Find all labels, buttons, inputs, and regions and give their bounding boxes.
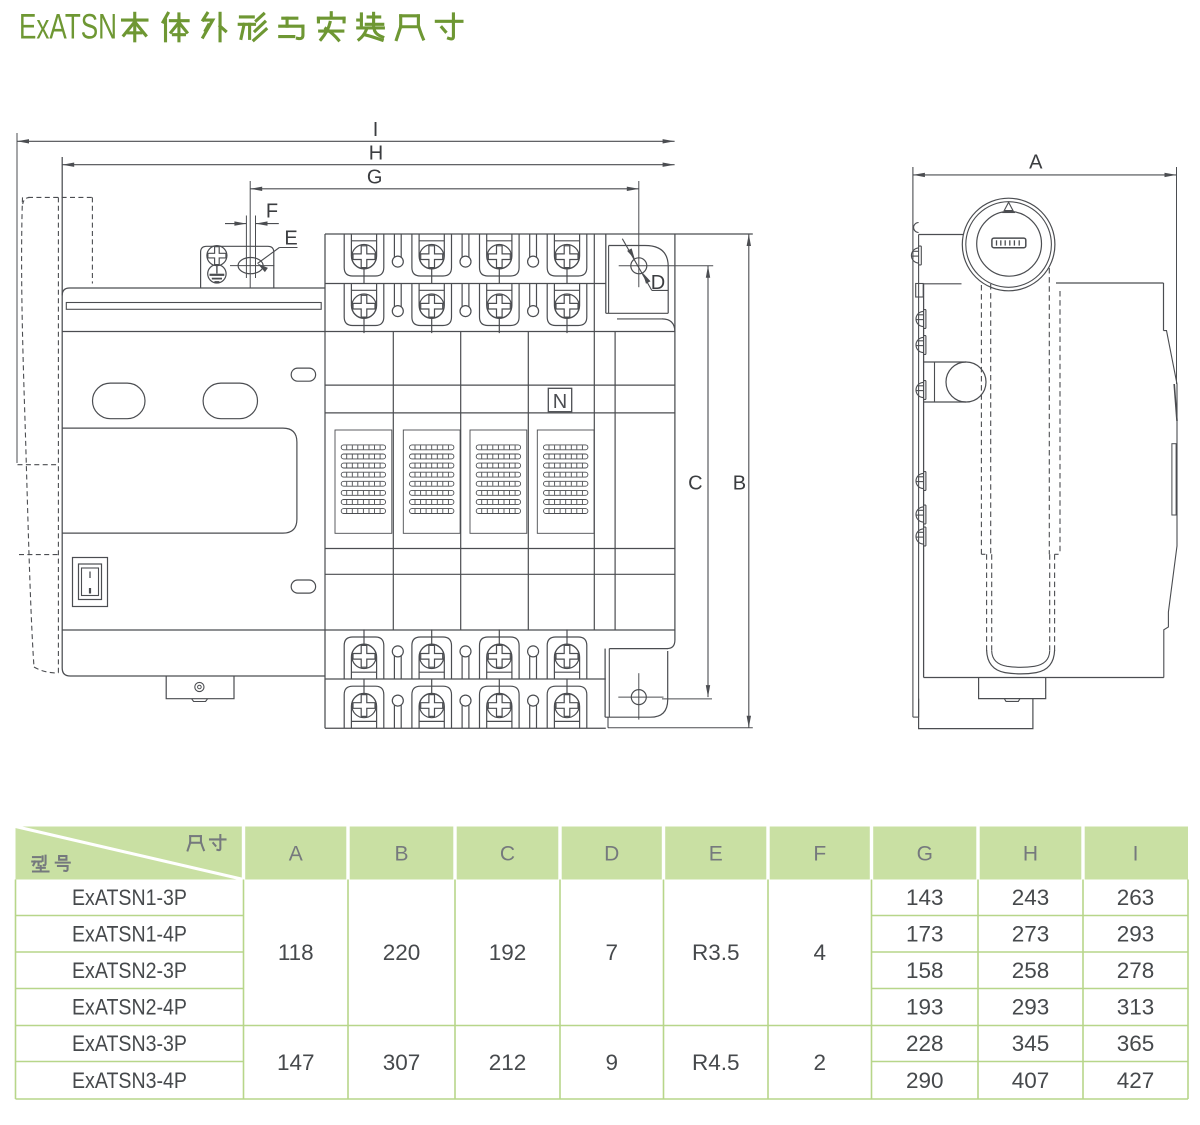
svg-text:ExATSN2-4P: ExATSN2-4P [72,995,187,1020]
svg-text:ExATSN1-4P: ExATSN1-4P [72,921,187,946]
svg-text:E: E [709,843,723,866]
svg-text:ExATSN1-3P: ExATSN1-3P [72,885,187,910]
svg-text:173: 173 [906,921,944,946]
svg-text:258: 258 [1012,958,1050,983]
svg-text:293: 293 [1012,995,1050,1020]
svg-text:R4.5: R4.5 [692,1050,740,1075]
svg-text:158: 158 [906,958,944,983]
svg-text:A: A [289,843,303,866]
svg-text:365: 365 [1117,1031,1155,1056]
svg-text:7: 7 [605,940,618,965]
svg-text:193: 193 [906,995,944,1020]
svg-text:ExATSN2-3P: ExATSN2-3P [72,958,187,983]
svg-text:4: 4 [813,940,826,965]
svg-text:313: 313 [1117,995,1155,1020]
svg-text:I: I [1133,843,1139,866]
svg-text:147: 147 [277,1050,315,1075]
svg-text:293: 293 [1117,921,1155,946]
svg-text:278: 278 [1117,958,1155,983]
svg-text:H: H [369,143,383,165]
svg-text:A: A [1029,152,1043,174]
svg-text:C: C [688,472,702,494]
svg-text:118: 118 [278,940,314,965]
svg-text:D: D [651,272,665,294]
svg-text:D: D [604,843,619,866]
svg-text:2: 2 [813,1050,826,1075]
svg-text:ExATSN3-4P: ExATSN3-4P [72,1068,187,1093]
svg-text:273: 273 [1012,921,1050,946]
svg-text:G: G [367,167,383,189]
svg-text:228: 228 [906,1031,944,1056]
svg-text:G: G [917,843,933,866]
svg-text:ExATSN: ExATSN [19,8,117,47]
svg-text:ExATSN3-3P: ExATSN3-3P [72,1031,187,1056]
svg-text:B: B [733,472,746,494]
svg-text:192: 192 [489,940,527,965]
svg-text:243: 243 [1012,885,1050,910]
svg-text:9: 9 [605,1050,618,1075]
svg-text:E: E [284,227,297,249]
svg-text:N: N [553,391,567,413]
svg-text:263: 263 [1117,885,1155,910]
svg-text:R3.5: R3.5 [692,940,740,965]
svg-text:407: 407 [1012,1068,1050,1093]
svg-text:H: H [1023,843,1038,866]
svg-text:143: 143 [906,885,944,910]
svg-text:220: 220 [383,940,421,965]
svg-text:F: F [266,201,278,223]
svg-text:290: 290 [906,1068,944,1093]
svg-text:307: 307 [383,1050,421,1075]
svg-text:B: B [394,843,408,866]
svg-text:C: C [500,843,515,866]
svg-text:I: I [373,119,379,141]
svg-text:F: F [813,843,826,866]
svg-text:345: 345 [1012,1031,1050,1056]
svg-text:427: 427 [1117,1068,1155,1093]
svg-text:212: 212 [489,1050,527,1075]
